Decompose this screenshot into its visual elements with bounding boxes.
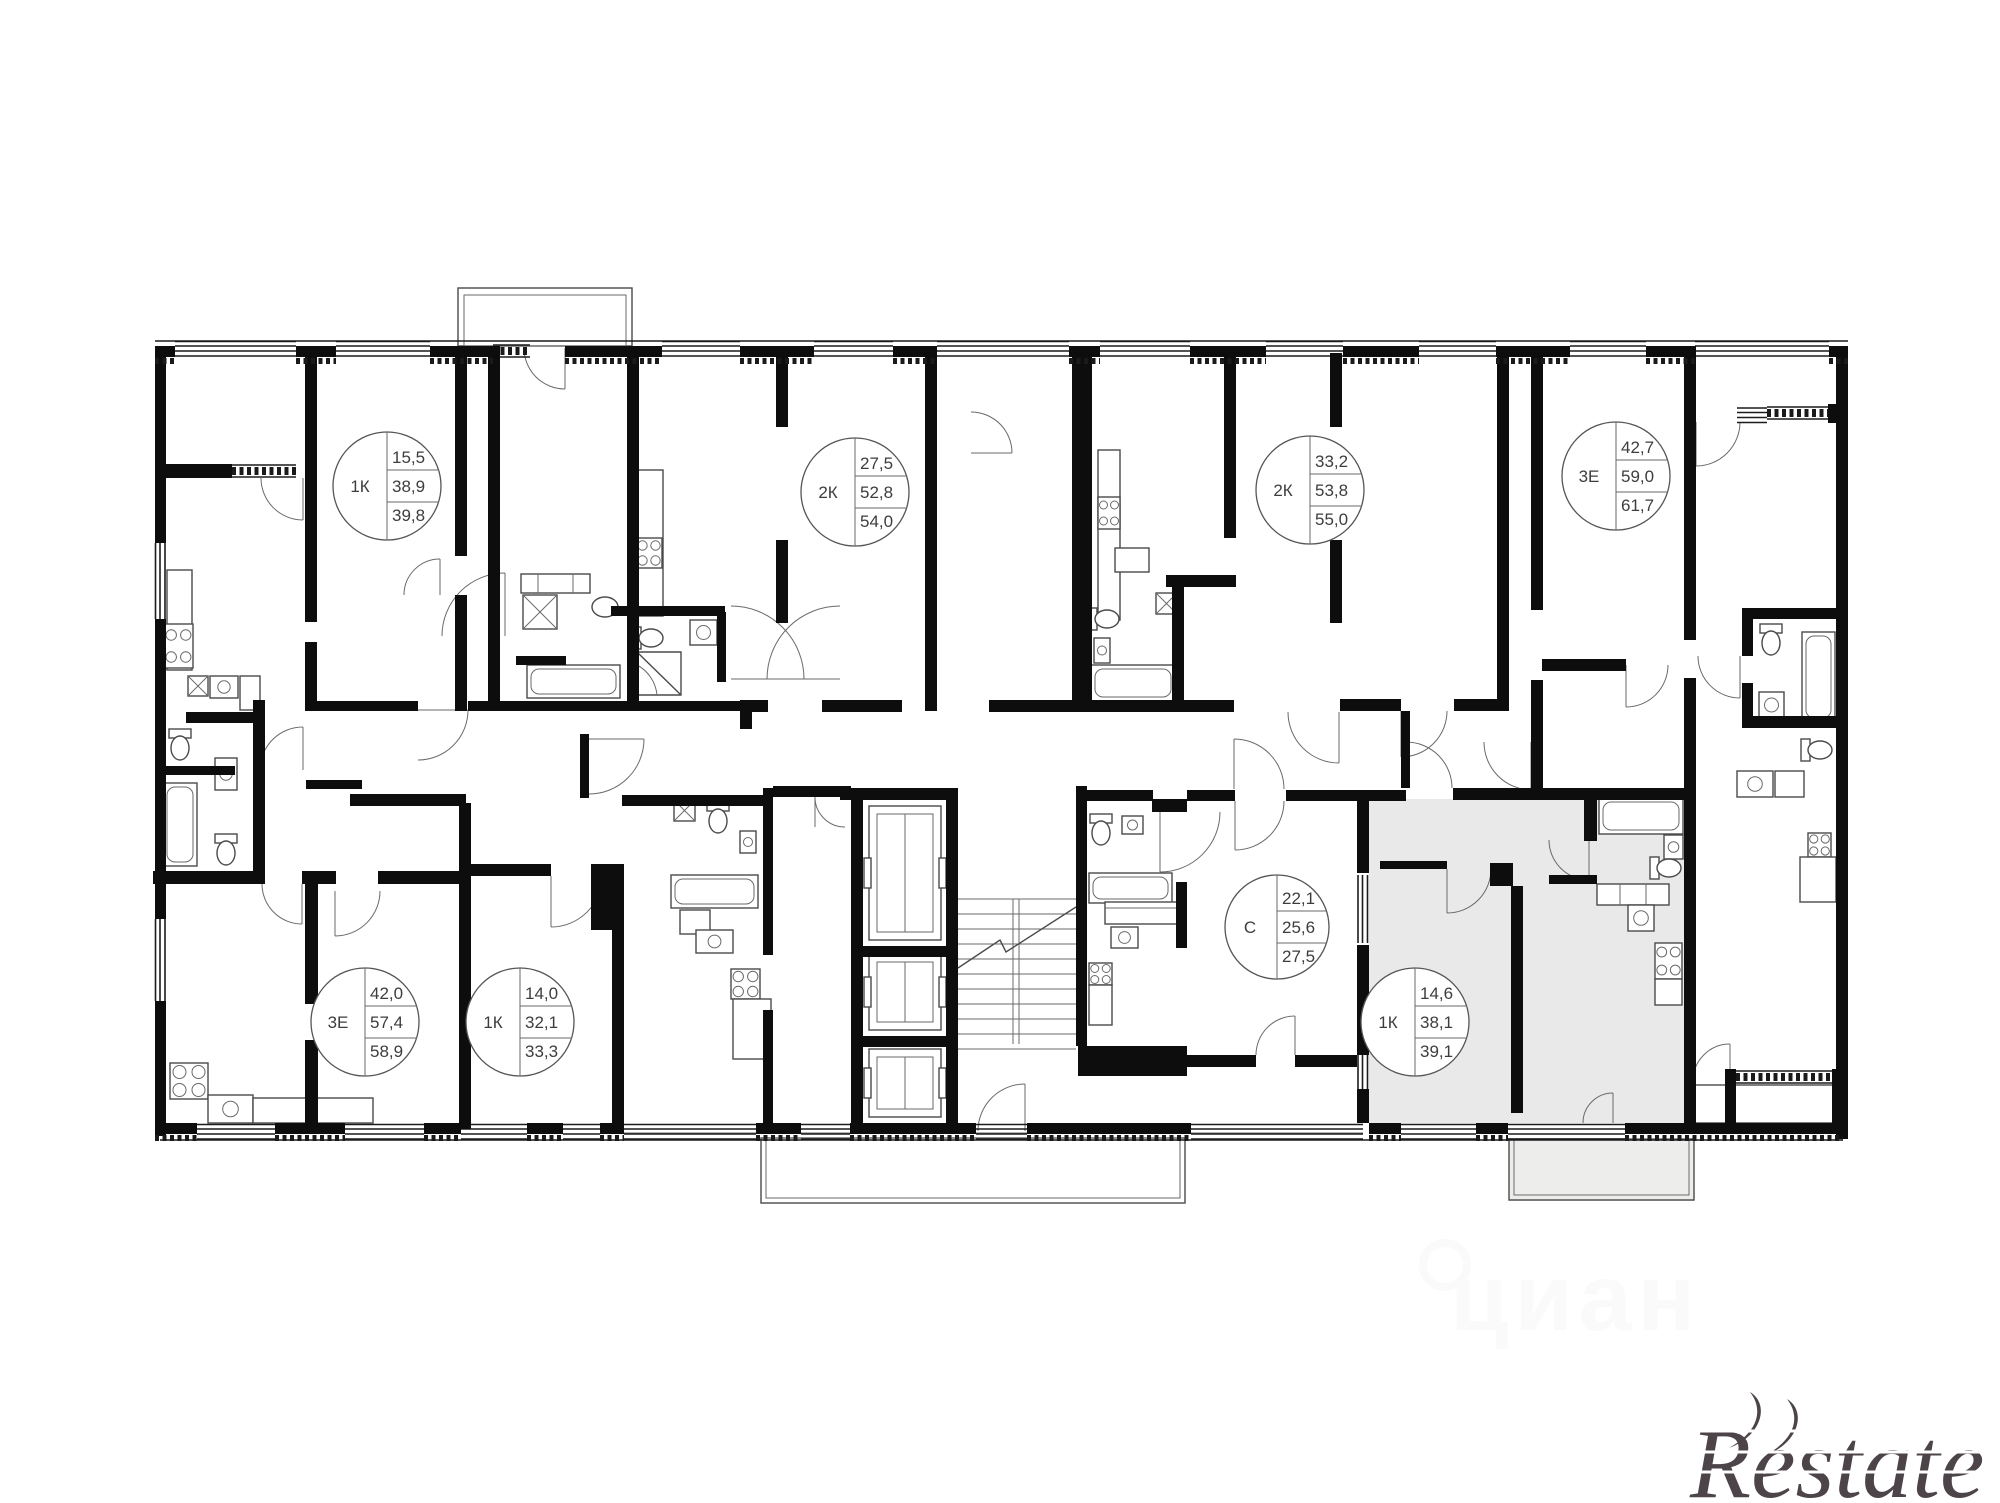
svg-text:54,0: 54,0 xyxy=(860,512,893,531)
svg-text:58,9: 58,9 xyxy=(370,1042,403,1061)
svg-text:61,7: 61,7 xyxy=(1621,496,1654,515)
svg-text:14,6: 14,6 xyxy=(1420,984,1453,1003)
svg-text:22,1: 22,1 xyxy=(1282,889,1315,908)
svg-text:57,4: 57,4 xyxy=(370,1013,403,1032)
svg-text:1К: 1К xyxy=(350,477,369,496)
svg-text:42,0: 42,0 xyxy=(370,984,403,1003)
svg-text:42,7: 42,7 xyxy=(1621,438,1654,457)
svg-text:15,5: 15,5 xyxy=(392,448,425,467)
svg-text:14,0: 14,0 xyxy=(525,984,558,1003)
svg-text:53,8: 53,8 xyxy=(1315,481,1348,500)
svg-text:Restate: Restate xyxy=(1689,1408,1984,1503)
svg-text:59,0: 59,0 xyxy=(1621,467,1654,486)
svg-text:52,8: 52,8 xyxy=(860,483,893,502)
svg-text:2К: 2К xyxy=(1273,481,1292,500)
svg-text:3Е: 3Е xyxy=(328,1013,349,1032)
svg-text:33,3: 33,3 xyxy=(525,1042,558,1061)
svg-text:38,1: 38,1 xyxy=(1420,1013,1453,1032)
svg-text:39,8: 39,8 xyxy=(392,506,425,525)
svg-text:33,2: 33,2 xyxy=(1315,452,1348,471)
svg-text:38,9: 38,9 xyxy=(392,477,425,496)
svg-text:27,5: 27,5 xyxy=(860,454,893,473)
svg-text:С: С xyxy=(1244,918,1256,937)
svg-text:2К: 2К xyxy=(818,483,837,502)
svg-text:3Е: 3Е xyxy=(1579,467,1600,486)
svg-text:циан: циан xyxy=(1450,1245,1701,1351)
svg-text:39,1: 39,1 xyxy=(1420,1042,1453,1061)
svg-text:55,0: 55,0 xyxy=(1315,510,1348,529)
svg-text:27,5: 27,5 xyxy=(1282,947,1315,966)
svg-text:32,1: 32,1 xyxy=(525,1013,558,1032)
svg-text:1К: 1К xyxy=(483,1013,502,1032)
svg-text:25,6: 25,6 xyxy=(1282,918,1315,937)
svg-text:1К: 1К xyxy=(1378,1013,1397,1032)
